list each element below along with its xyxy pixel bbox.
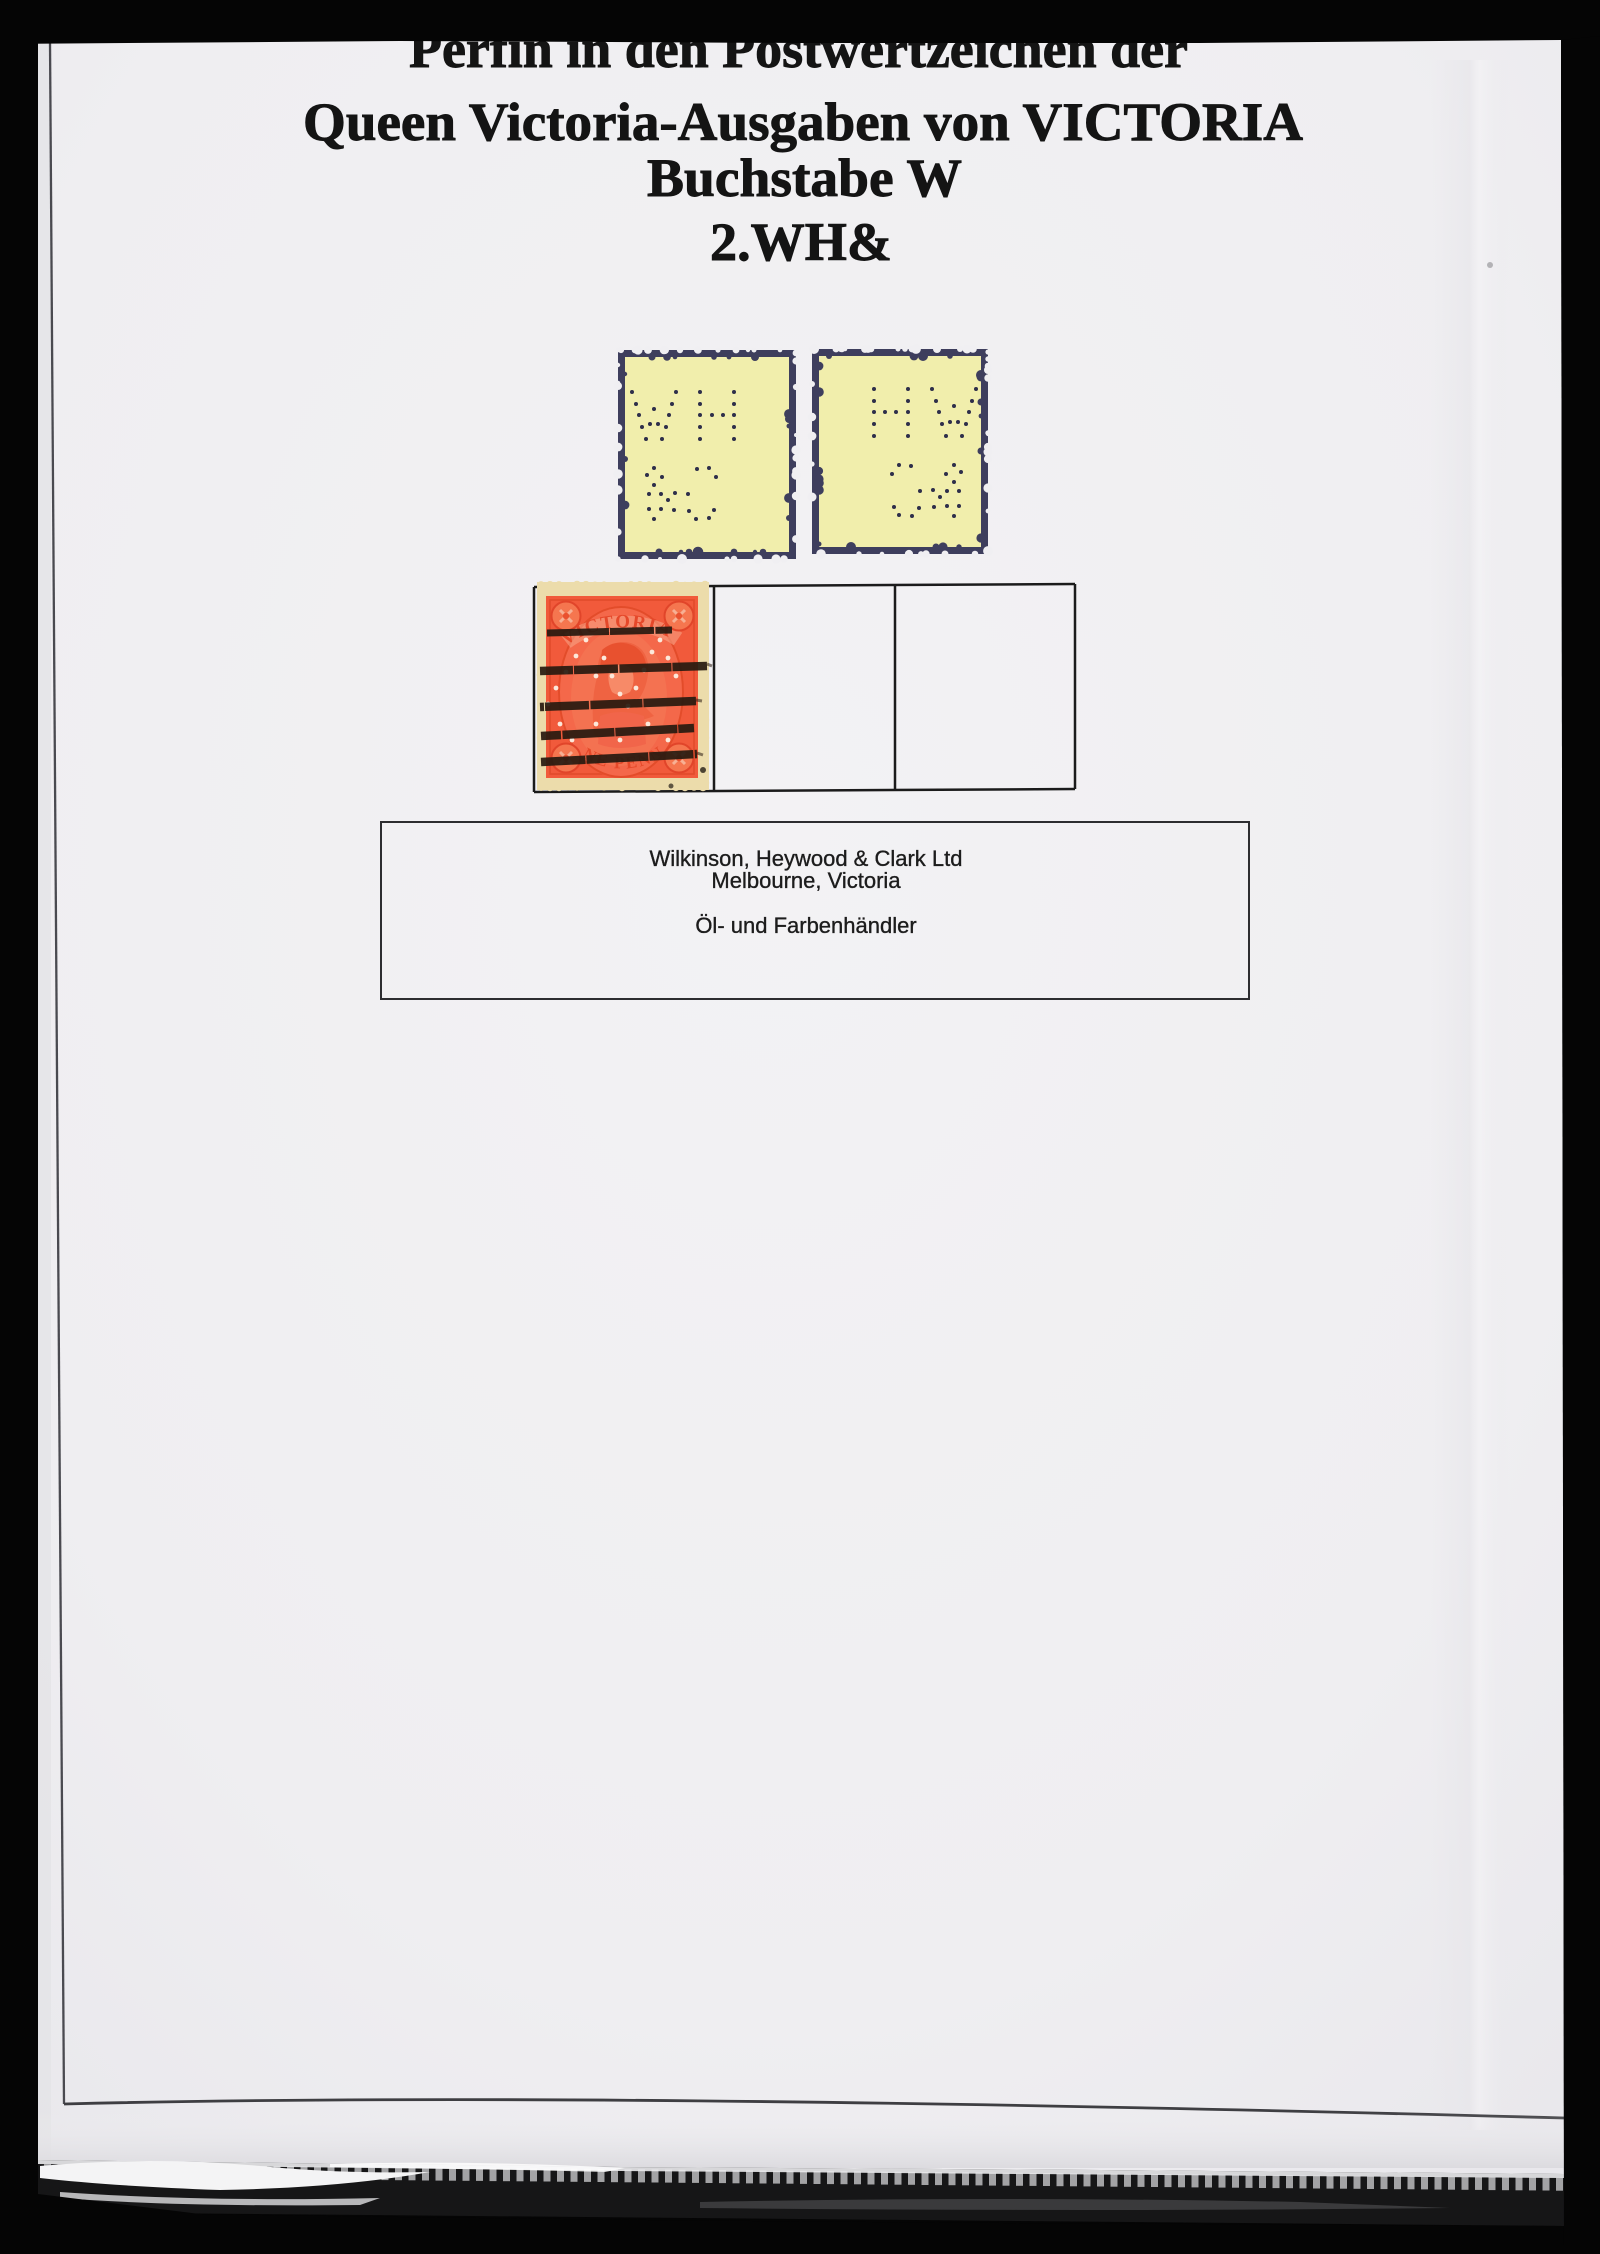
svg-text:2.WH&: 2.WH& [710, 212, 892, 272]
svg-text:Queen Victoria-Ausgaben von VI: Queen Victoria-Ausgaben von VICTORIA [303, 92, 1303, 152]
svg-text:Buchstabe W: Buchstabe W [647, 148, 962, 208]
svg-text:Öl- und Farbenhändler: Öl- und Farbenhändler [695, 913, 916, 938]
svg-text:Melbourne, Victoria: Melbourne, Victoria [711, 868, 901, 893]
